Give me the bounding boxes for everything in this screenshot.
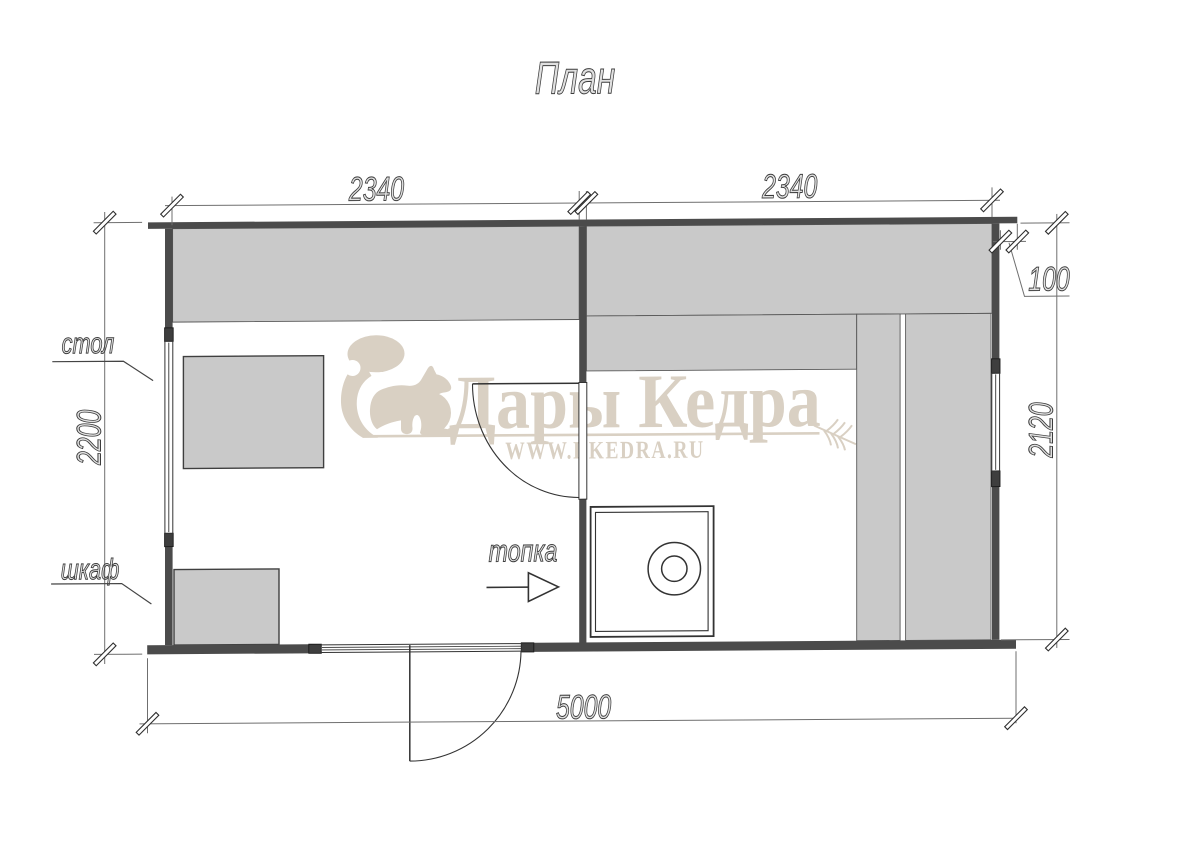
svg-text:2340: 2340 [761,168,817,206]
svg-text:5000: 5000 [556,688,611,726]
svg-text:2200: 2200 [71,410,109,466]
svg-text:WWW.DKEDRA.RU: WWW.DKEDRA.RU [505,437,704,465]
svg-text:шкаф: шкаф [61,554,120,586]
svg-text:2120: 2120 [1023,402,1061,458]
svg-text:стол: стол [62,328,115,360]
svg-text:План: План [535,51,615,104]
svg-text:2340: 2340 [348,170,404,208]
svg-text:топка: топка [489,533,558,568]
svg-text:100: 100 [1028,260,1069,298]
